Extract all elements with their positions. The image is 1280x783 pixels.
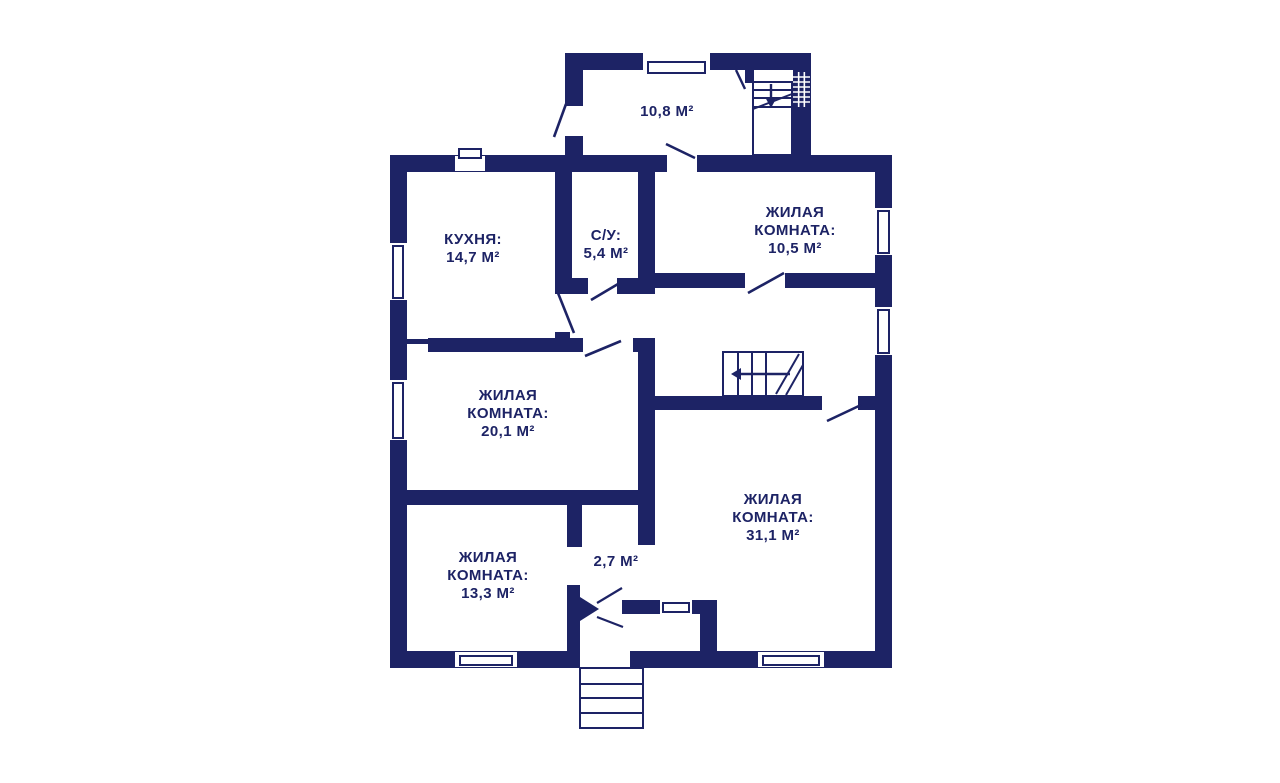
- plan-line: [585, 341, 621, 356]
- wall-segment: [655, 273, 745, 288]
- stairs-outline: [753, 82, 792, 155]
- wall-segment: [565, 136, 583, 156]
- floor-plan-canvas: 10,8 М² КУХНЯ: 14,7 М² С/У: 5,4 М² ЖИЛАЯ…: [0, 0, 1280, 783]
- room-area: 20,1 М²: [467, 423, 548, 441]
- wall-segment: [655, 396, 822, 410]
- wall-segment: [638, 172, 655, 293]
- wall-segment: [638, 342, 655, 545]
- wall-segment: [617, 278, 655, 294]
- plan-line: [597, 617, 623, 627]
- plan-line: [736, 70, 745, 89]
- window-frame: [393, 246, 403, 298]
- room-label-bathroom: С/У: 5,4 М²: [584, 227, 629, 263]
- plan-arrowhead: [580, 597, 599, 621]
- window-frame: [460, 656, 512, 665]
- room-area: 10,8 М²: [640, 103, 694, 121]
- room-name: КОМНАТА:: [754, 222, 835, 240]
- wall-segment: [567, 505, 582, 547]
- wall-segment: [697, 155, 892, 172]
- room-area: 2,7 М²: [594, 553, 639, 571]
- room-label-living-13-3: ЖИЛАЯ КОМНАТА: 13,3 М²: [447, 549, 528, 603]
- room-area: 14,7 М²: [444, 249, 502, 267]
- room-name: КОМНАТА:: [467, 405, 548, 423]
- window-frame: [393, 383, 403, 438]
- room-label-living-31-1: ЖИЛАЯ КОМНАТА: 31,1 М²: [732, 491, 813, 545]
- wall-segment: [565, 53, 583, 106]
- window-frame: [459, 149, 481, 158]
- wall-segment: [555, 278, 588, 294]
- wall-segment: [428, 338, 583, 352]
- wall-segment: [858, 396, 875, 410]
- room-name: ЖИЛАЯ: [754, 204, 835, 222]
- wall-segment: [407, 339, 430, 344]
- room-area: 5,4 М²: [584, 245, 629, 263]
- room-area: 31,1 М²: [732, 527, 813, 545]
- window-frame: [763, 656, 819, 665]
- wall-segment: [390, 490, 640, 505]
- room-name: ЖИЛАЯ: [447, 549, 528, 567]
- room-area: 10,5 М²: [754, 240, 835, 258]
- plan-line: [597, 588, 622, 603]
- room-label-kitchen: КУХНЯ: 14,7 М²: [444, 231, 502, 267]
- wall-segment: [555, 170, 572, 292]
- window-frame: [648, 62, 705, 73]
- plan-line: [558, 293, 574, 333]
- plan-line: [591, 284, 618, 300]
- room-name: КУХНЯ:: [444, 231, 502, 249]
- room-label-living-10-5: ЖИЛАЯ КОМНАТА: 10,5 М²: [754, 204, 835, 258]
- wall-segment: [785, 273, 875, 288]
- room-label-hallway-2-7: 2,7 М²: [594, 553, 639, 571]
- window-frame: [878, 310, 889, 353]
- room-label-annex: 10,8 М²: [640, 103, 694, 121]
- room-label-living-20-1: ЖИЛАЯ КОМНАТА: 20,1 М²: [467, 387, 548, 441]
- wall-segment: [390, 155, 667, 172]
- room-name: КОМНАТА:: [447, 567, 528, 585]
- room-name: С/У:: [584, 227, 629, 245]
- wall-segment: [700, 600, 717, 668]
- room-area: 13,3 М²: [447, 585, 528, 603]
- window-frame: [663, 603, 689, 612]
- plan-line: [554, 104, 566, 137]
- plan-line: [748, 273, 784, 293]
- window-frame: [878, 211, 889, 253]
- wall-segment: [622, 600, 660, 614]
- plan-line: [666, 144, 695, 158]
- room-name: ЖИЛАЯ: [732, 491, 813, 509]
- room-name: ЖИЛАЯ: [467, 387, 548, 405]
- room-name: КОМНАТА:: [732, 509, 813, 527]
- wall-segment: [567, 585, 580, 667]
- plan-line: [827, 405, 861, 421]
